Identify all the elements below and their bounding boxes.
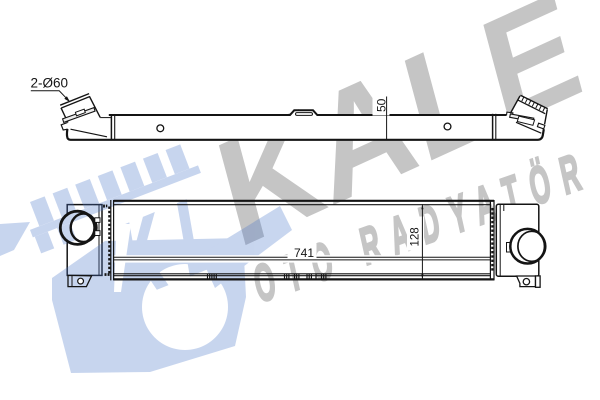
svg-text:2-Ø60: 2-Ø60 bbox=[31, 76, 69, 91]
svg-text:741: 741 bbox=[294, 246, 314, 260]
svg-text:50: 50 bbox=[375, 98, 389, 112]
svg-text:128: 128 bbox=[410, 227, 422, 246]
